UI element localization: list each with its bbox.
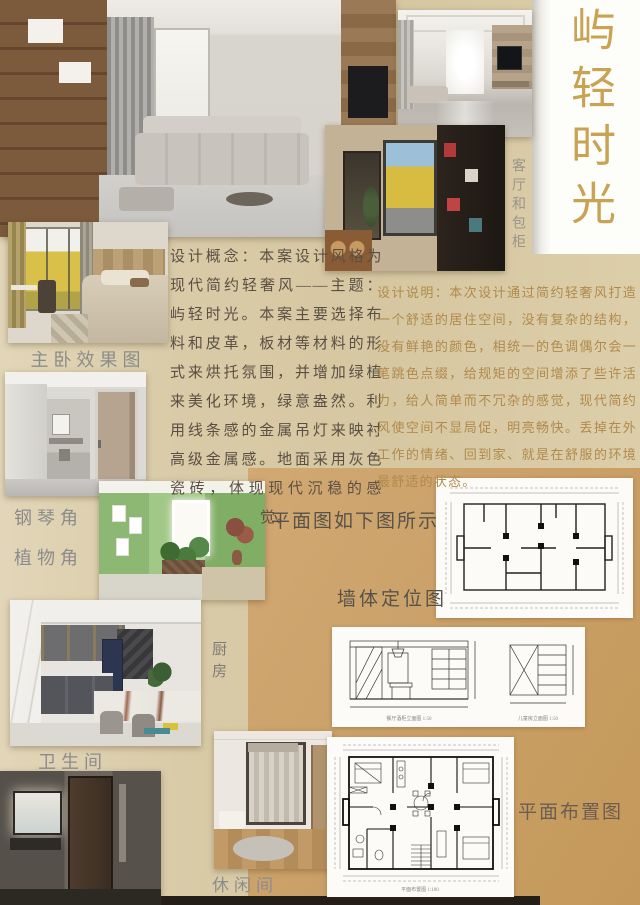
elevation-drawings-panel: 餐厅酒柜立面图 1:50 儿童房立面图 1:50 <box>332 627 585 727</box>
pillow <box>130 278 149 288</box>
cabinet-item <box>469 218 482 231</box>
photo-leisure-room <box>214 731 332 869</box>
wall <box>5 384 47 478</box>
wall-frame <box>129 517 143 534</box>
design-concept-text: 设计概念：本案设计风格为现代简约轻奢风——主题：屿轻时光。本案主要选择布料和皮革… <box>170 243 383 533</box>
furniture-plan-drawing: 平面布置图 1:100 <box>327 737 514 897</box>
chair <box>38 280 56 313</box>
lit-mirror <box>13 791 62 835</box>
cabinet <box>202 567 265 600</box>
inner-window <box>52 414 71 435</box>
wall-frame <box>116 538 130 555</box>
stool <box>59 449 70 461</box>
valance <box>248 743 298 751</box>
chair <box>100 711 123 734</box>
bench <box>219 811 245 829</box>
wall-plan-drawing <box>436 478 633 618</box>
label-furniture-plan: 平面布置图 <box>518 797 623 824</box>
cabinet-item <box>447 198 460 211</box>
window-curtain <box>246 742 306 825</box>
label-wall-plan: 墙体定位图 <box>337 584 447 611</box>
cabinet-item <box>465 169 478 182</box>
bottom-dark-strip <box>158 896 540 905</box>
photo-bathroom <box>0 771 161 905</box>
elevation-drawings: 餐厅酒柜立面图 1:50 儿童房立面图 1:50 <box>332 627 585 727</box>
round-rug <box>233 836 294 861</box>
vanity-table <box>49 438 83 444</box>
wall-positioning-plan-panel <box>436 478 633 618</box>
photo-kitchen <box>10 600 201 746</box>
vanity <box>10 838 62 850</box>
poster-title: 屿轻时光 <box>566 6 611 238</box>
window-glow <box>446 30 484 94</box>
elevation-left-caption: 餐厅酒柜立面图 1:50 <box>386 715 432 722</box>
window-autumn-view <box>383 140 438 237</box>
label-leisure-room: 休闲间 <box>212 871 278 896</box>
wall-light <box>119 784 125 862</box>
planter-box <box>162 560 205 574</box>
photo-piano-corner-hallway <box>5 372 146 496</box>
label-kitchen: 厨房 <box>208 641 229 685</box>
label-bathroom: 卫生间 <box>38 748 107 774</box>
furniture-plan-caption: 平面布置图 1:100 <box>401 886 439 893</box>
label-master-bedroom: 主卧效果图 <box>8 346 168 372</box>
label-piano-corner: 钢琴角 <box>14 504 83 530</box>
sofa <box>135 133 309 185</box>
sofa <box>407 86 447 103</box>
design-poster: 餐厅酒柜立面图 1:50 儿童房立面图 1:50 <box>0 0 640 905</box>
media-console <box>492 81 530 87</box>
photo-master-bedroom <box>8 222 168 343</box>
furniture-layout-plan-panel: 平面布置图 1:100 <box>327 737 514 897</box>
vase <box>232 550 242 565</box>
curtain <box>8 222 26 328</box>
placemat <box>144 728 171 734</box>
floor <box>99 574 202 600</box>
label-living-cabinet: 客厅和包柜 <box>507 158 527 253</box>
label-plant-corner: 植物角 <box>14 544 83 570</box>
design-description-text: 设计说明：本次设计通过简约轻奢风打造一个舒适的居住空间，没有复杂的结构，没有鲜艳… <box>377 279 637 495</box>
plant <box>363 186 379 227</box>
cabinet-item <box>444 143 457 158</box>
rug <box>51 314 88 343</box>
plant <box>148 653 177 691</box>
bed <box>82 275 168 343</box>
cabinet-box <box>59 62 91 83</box>
door <box>68 776 114 898</box>
floor <box>0 889 161 905</box>
wall-frame <box>112 505 126 522</box>
door-handle <box>98 440 101 448</box>
ottoman <box>119 187 174 211</box>
tv-screen <box>497 46 522 71</box>
cabinet-box <box>28 19 64 43</box>
tv-screen <box>348 66 388 118</box>
crown-molding <box>214 739 332 740</box>
elevation-right-caption: 儿童房立面图 1:50 <box>518 715 559 722</box>
photo-living-room-2 <box>398 10 532 137</box>
desk <box>11 285 37 290</box>
